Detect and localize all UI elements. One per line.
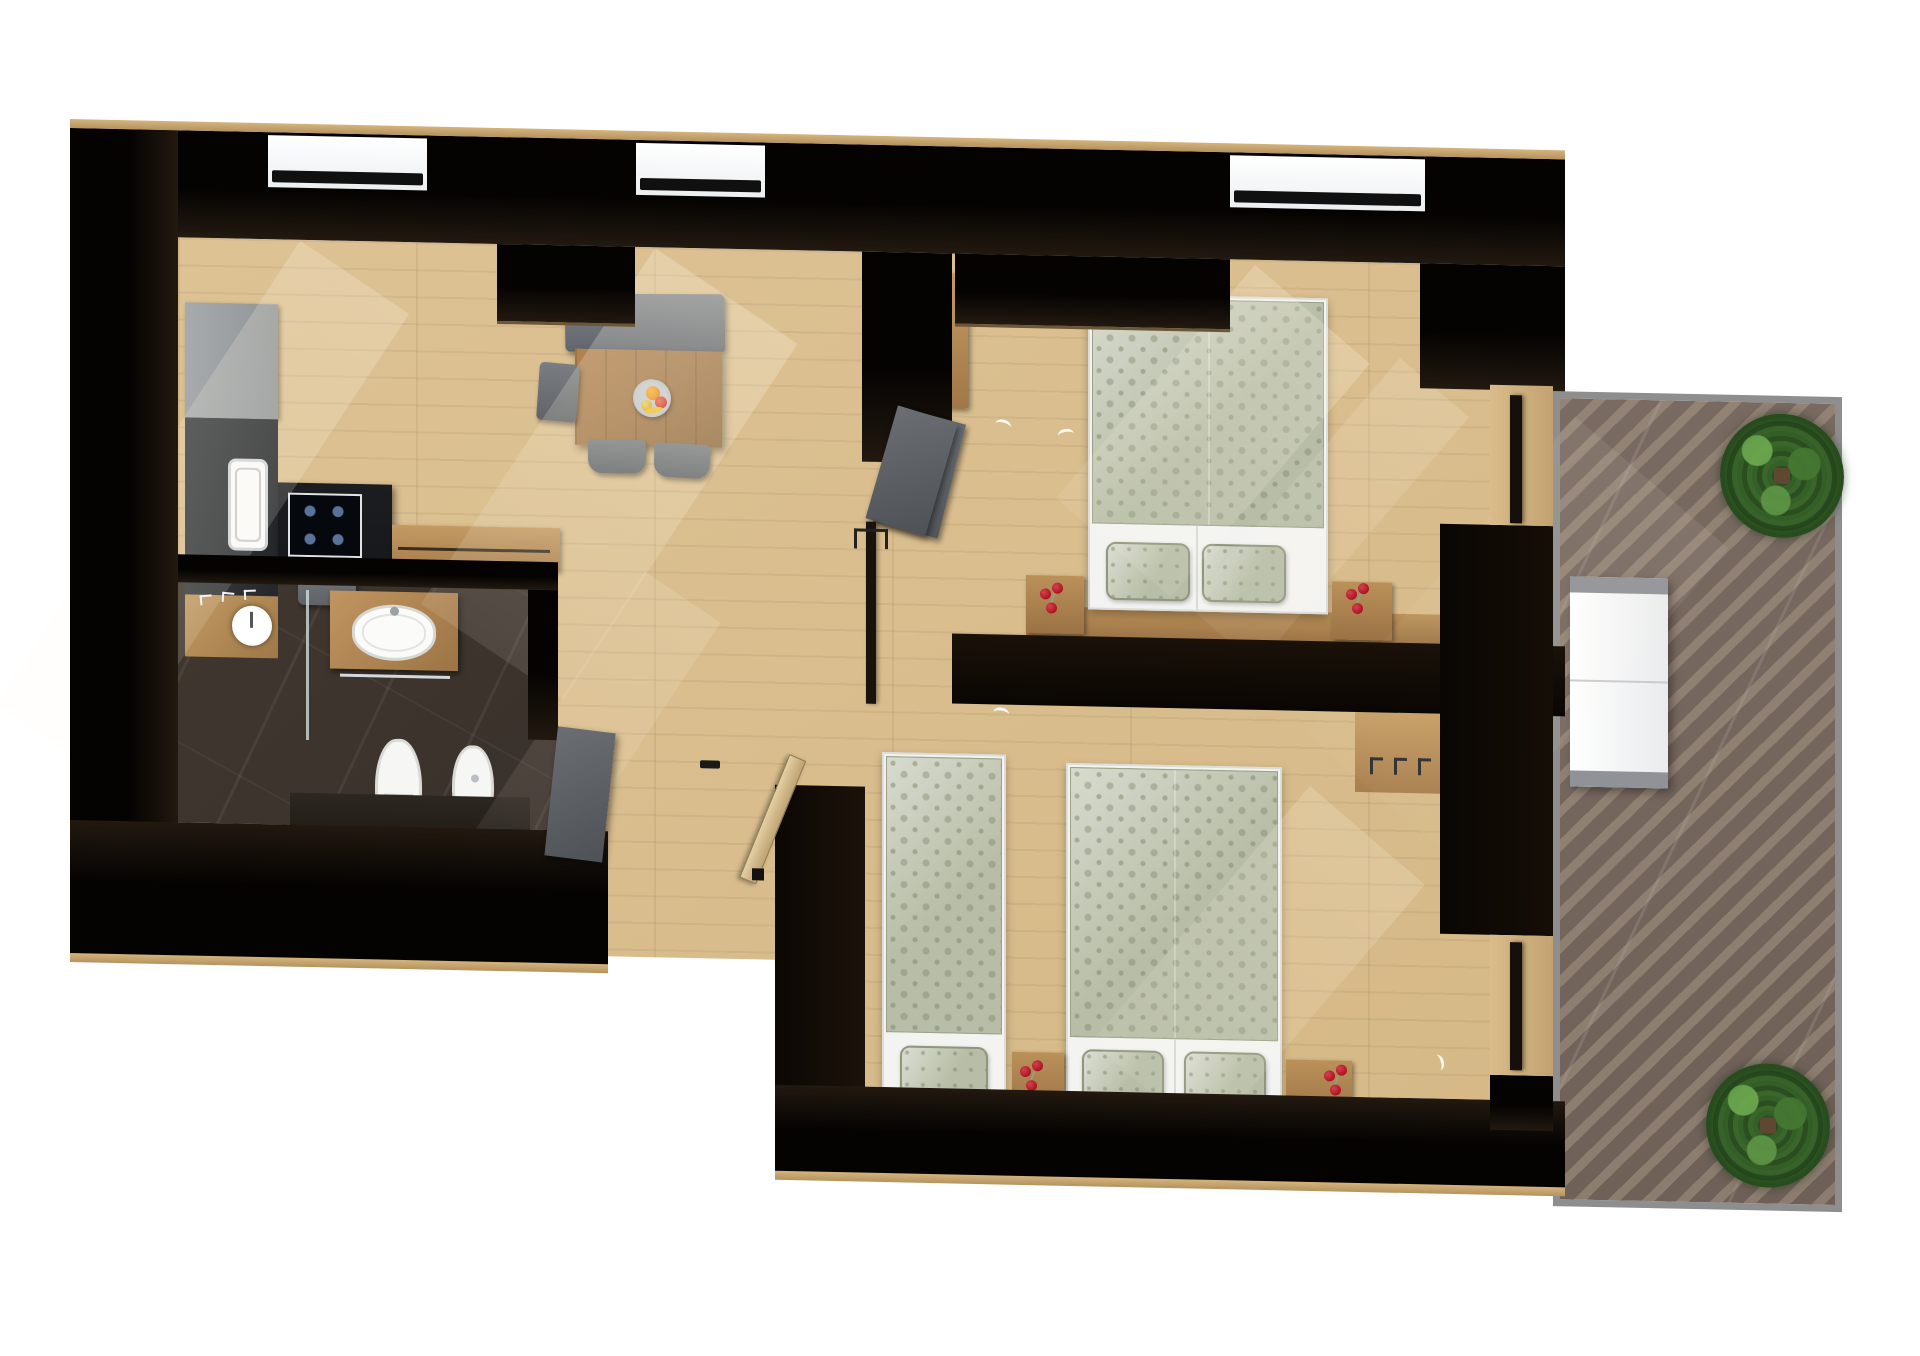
wall-bathroom-east xyxy=(528,590,558,741)
wall-south-bathroom xyxy=(70,820,608,966)
cooktop-icon xyxy=(288,493,362,559)
wall-northeast-corner xyxy=(1420,263,1565,391)
wall-east-stub xyxy=(1490,1075,1553,1131)
faucet-icon xyxy=(390,607,399,616)
door-handle-icon xyxy=(854,528,888,549)
render-canvas xyxy=(0,0,1920,1356)
roses-icon xyxy=(1040,582,1066,617)
terrace-door xyxy=(1510,942,1522,1070)
tall-cabinet xyxy=(497,244,635,327)
floor-plan xyxy=(0,0,1920,1356)
door-hinge xyxy=(752,868,764,880)
towel-hook-icon xyxy=(244,590,257,600)
terrace-door xyxy=(1510,395,1522,523)
door-handle-icon xyxy=(700,760,720,768)
potted-plant-icon xyxy=(1706,1062,1830,1189)
shower-head-icon xyxy=(232,605,272,646)
duvet xyxy=(886,756,1002,1034)
wall-east-wardrobe xyxy=(1440,524,1553,936)
bedroom2-door xyxy=(866,522,876,704)
shower-glass-screen xyxy=(306,590,309,740)
window-frame xyxy=(640,178,761,193)
roses-icon xyxy=(1324,1064,1350,1099)
built-in-wardrobe xyxy=(955,254,1230,333)
roses-icon xyxy=(1346,583,1372,618)
potted-plant-icon xyxy=(1720,413,1844,540)
